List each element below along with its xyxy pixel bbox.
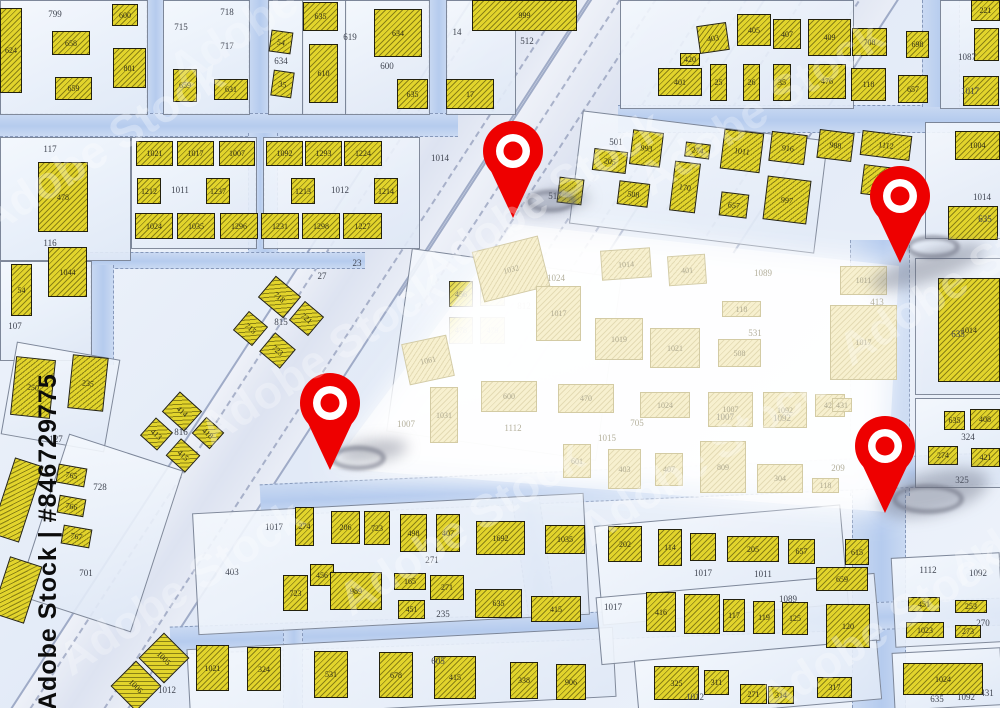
adobe-stock-watermark: Adobe Stock [828, 178, 1000, 376]
adobe-stock-watermark: Adobe Stock [0, 48, 233, 246]
adobe-stock-watermark: Adobe Stock [938, 398, 1000, 596]
stock-id-watermark: Adobe Stock | #846729775 [34, 373, 63, 708]
adobe-stock-watermark: Adobe Stock [628, 8, 893, 206]
watermark-layer: Adobe Stock | #846729775 Adobe StockAdob… [0, 0, 1000, 708]
adobe-stock-watermark: Adobe Stock [408, 98, 673, 296]
adobe-stock-watermark: Adobe Stock [48, 488, 313, 686]
adobe-stock-watermark: Adobe Stock [158, 0, 423, 96]
adobe-stock-watermark: Adobe Stock [748, 528, 1000, 708]
cadastral-map: 6246586006598016596315435635610634635179… [0, 0, 1000, 708]
adobe-stock-watermark: Adobe Stock [328, 428, 593, 626]
adobe-stock-watermark: Adobe Stock [568, 358, 833, 556]
adobe-stock-watermark: Adobe Stock [188, 258, 453, 456]
